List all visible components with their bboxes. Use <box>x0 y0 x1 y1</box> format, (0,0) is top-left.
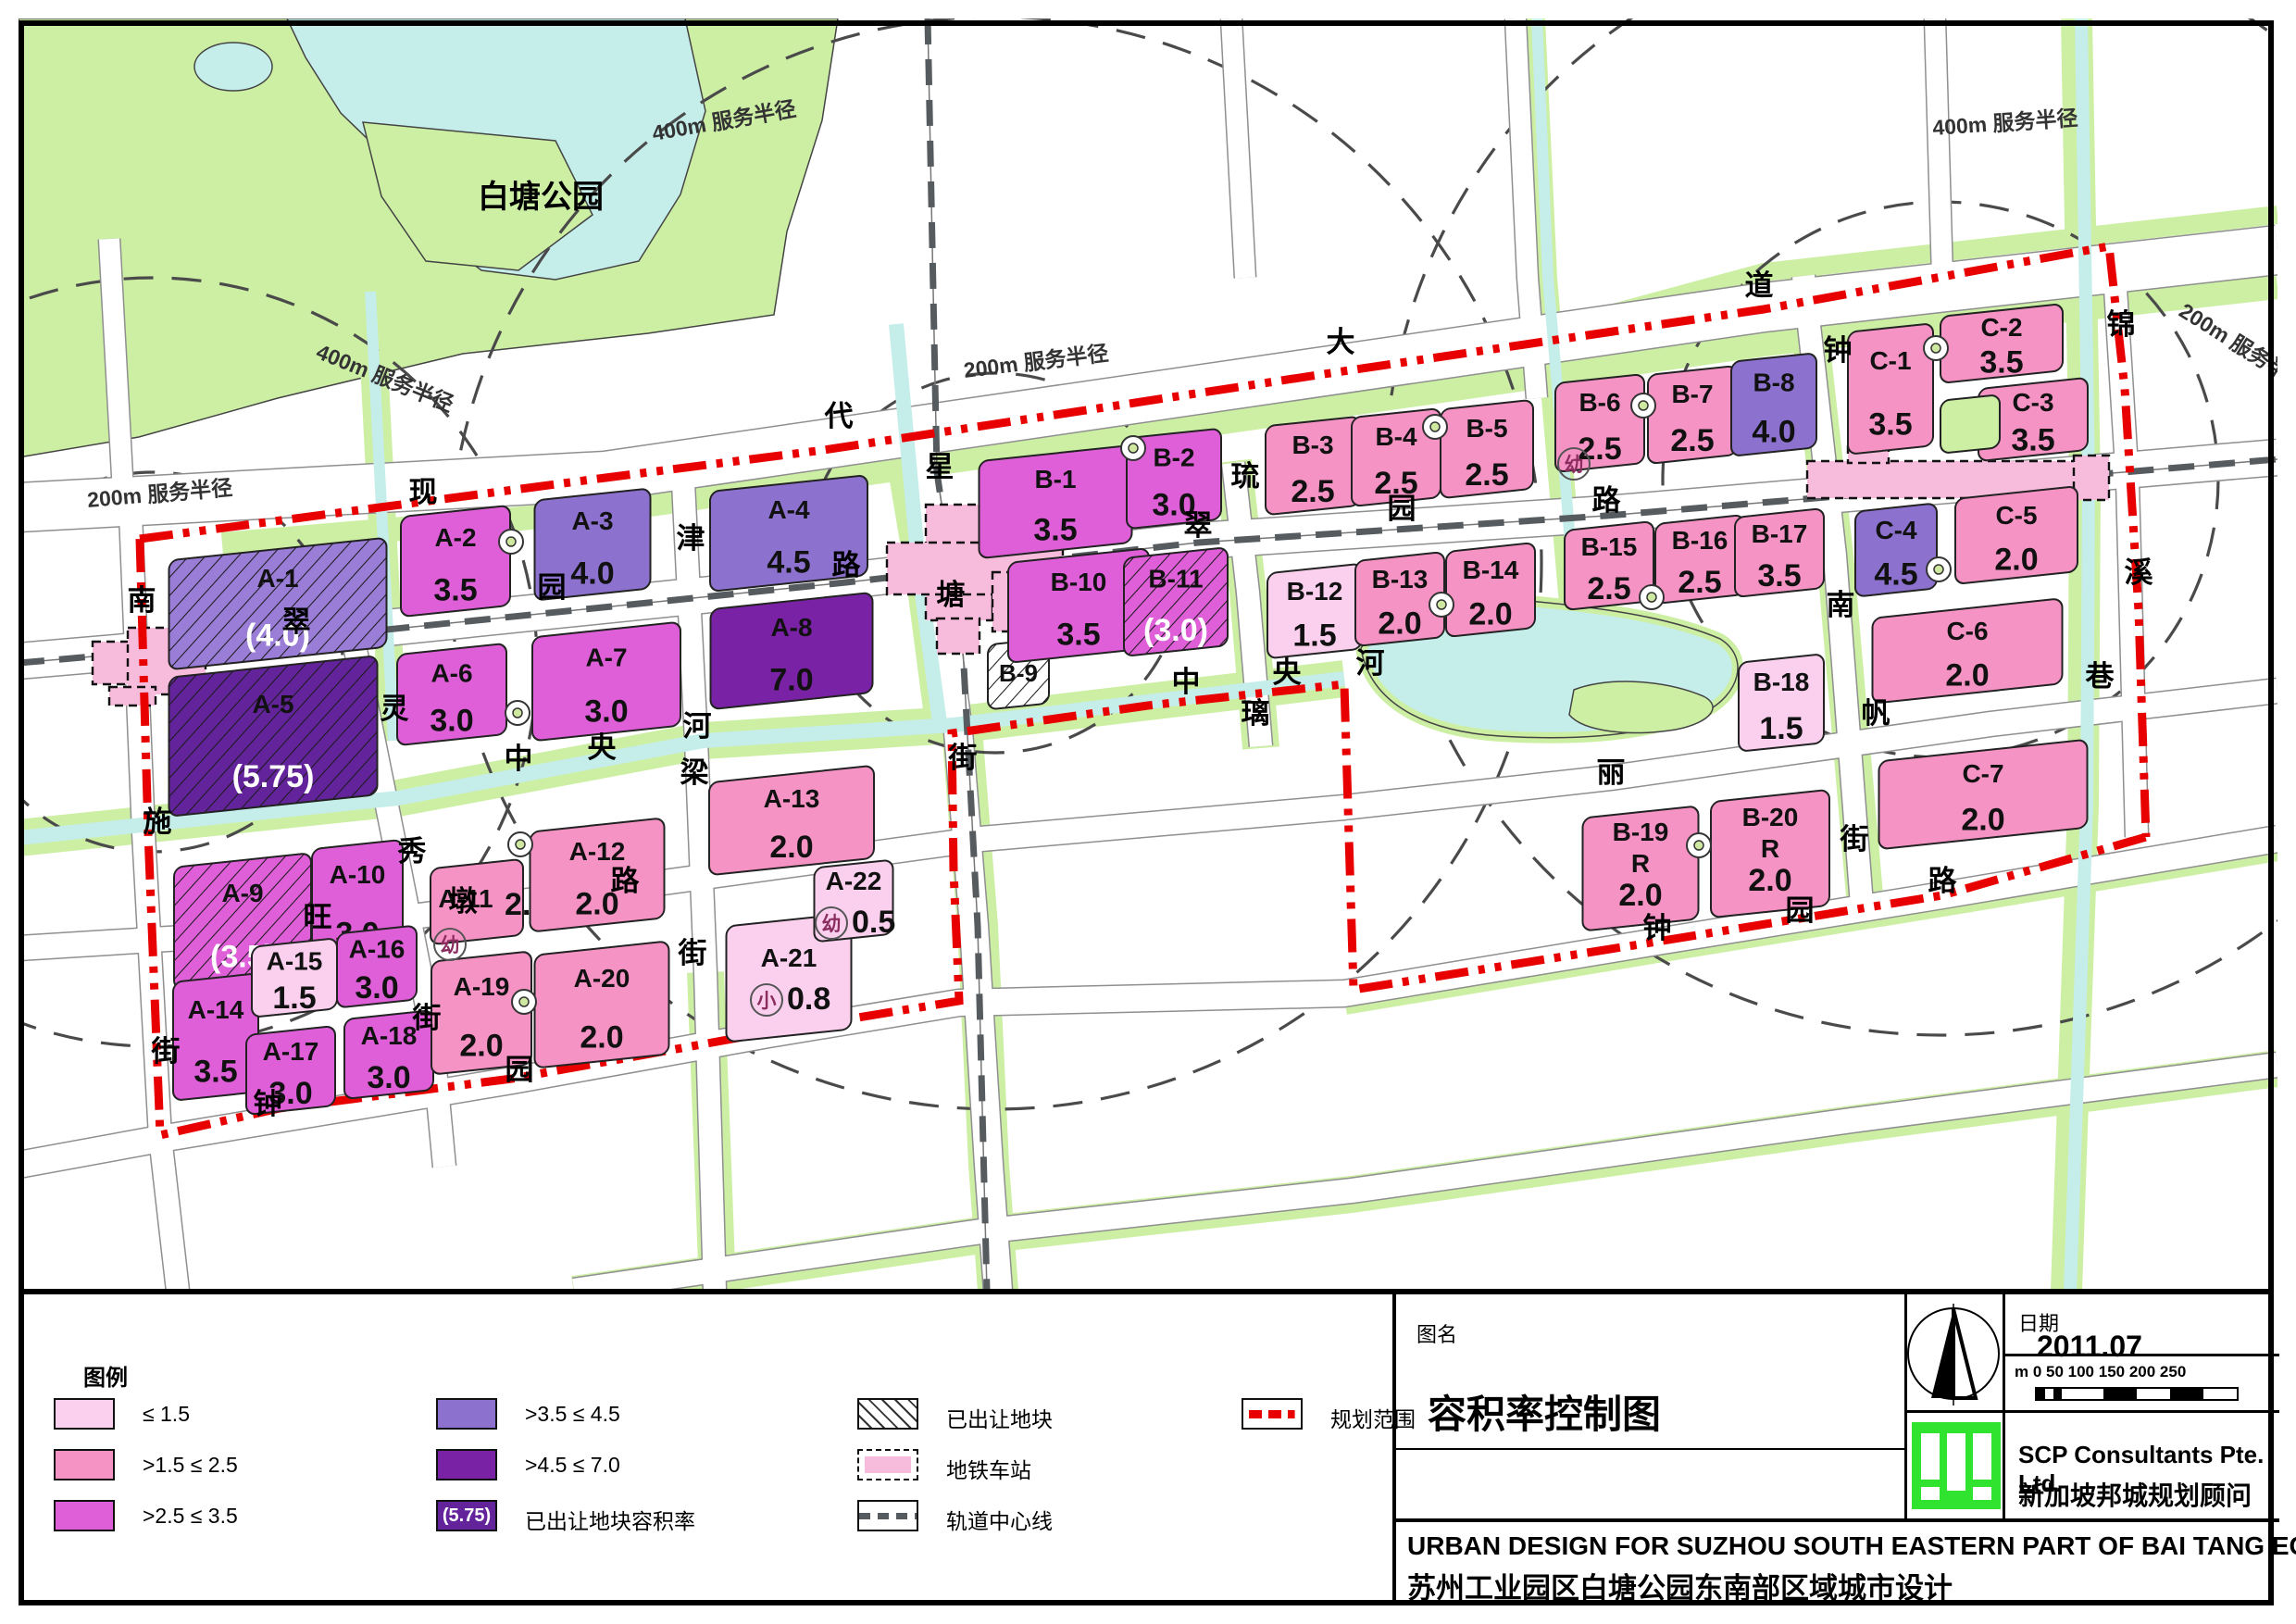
legend-far-le-1-5-label: ≤ 1.5 <box>143 1402 190 1427</box>
north-compass <box>1904 1294 2003 1410</box>
legend-sold-far-label: 已出让地块容积率 <box>525 1504 695 1535</box>
scale-bar-strip <box>2035 1387 2239 1401</box>
legend-far-3-5-4-5-label: >3.5 ≤ 4.5 <box>525 1402 620 1427</box>
tb-line <box>2003 1294 2005 1518</box>
firm-name-cn: 新加坡邦城规划顾问 <box>2018 1476 2252 1513</box>
sheet-title: 容积率控制图 <box>1428 1383 1661 1440</box>
tb-line <box>1396 1518 2279 1522</box>
title-block: 图名 容积率控制图 日期 2011.07 m 0 50 100 150 200 … <box>1392 1294 2276 1600</box>
scp-logo <box>1912 1422 2001 1509</box>
tb-line <box>1396 1448 1904 1450</box>
legend-far-4-5-7-0-swatch <box>436 1449 497 1480</box>
legend-far-le-1-5-swatch <box>54 1398 115 1430</box>
project-title-cn: 苏州工业园区白塘公园东南部区域城市设计 <box>1407 1565 1953 1606</box>
legend-metro-station-swatch <box>857 1449 918 1480</box>
plan-sheet: A-1(4.0)A-23.5A-34.0A-44.5A-5(5.75)A-63.… <box>0 0 2296 1624</box>
tb-line <box>1904 1410 2279 1413</box>
legend-planning-boundary-swatch <box>1242 1398 1303 1430</box>
legend-far-2-5-3-5-swatch <box>54 1500 115 1531</box>
legend-far-1-5-2-5-label: >1.5 ≤ 2.5 <box>143 1453 238 1478</box>
sheet-name-label: 图名 <box>1416 1318 1457 1348</box>
project-title-en: URBAN DESIGN FOR SUZHOU SOUTH EASTERN PA… <box>1407 1531 2296 1561</box>
date-value: 2011.07 <box>2037 1330 2142 1364</box>
legend-metro-station-label: 地铁车站 <box>946 1453 1031 1484</box>
legend-rail-centerline-swatch <box>857 1500 918 1531</box>
legend-sold-parcel-swatch <box>857 1398 918 1430</box>
legend-panel: 图例 ≤ 1.5 >1.5 ≤ 2.5 >2.5 ≤ 3.5 >3.5 ≤ 4.… <box>24 1294 1392 1600</box>
scale-bar: m 0 50 100 150 200 250 <box>2015 1363 2274 1407</box>
legend-title: 图例 <box>83 1359 128 1392</box>
legend-far-1-5-2-5-swatch <box>54 1449 115 1480</box>
legend-far-4-5-7-0-label: >4.5 ≤ 7.0 <box>525 1453 620 1478</box>
legend-far-2-5-3-5-label: >2.5 ≤ 3.5 <box>143 1504 238 1529</box>
legend-sold-parcel-label: 已出让地块 <box>946 1402 1053 1433</box>
legend-far-3-5-4-5-swatch <box>436 1398 497 1430</box>
legend-sold-far-swatch: (5.75) <box>436 1500 497 1531</box>
legend-rail-centerline-label: 轨道中心线 <box>946 1504 1053 1535</box>
scale-ticks: m 0 50 100 150 200 250 <box>2015 1363 2186 1381</box>
